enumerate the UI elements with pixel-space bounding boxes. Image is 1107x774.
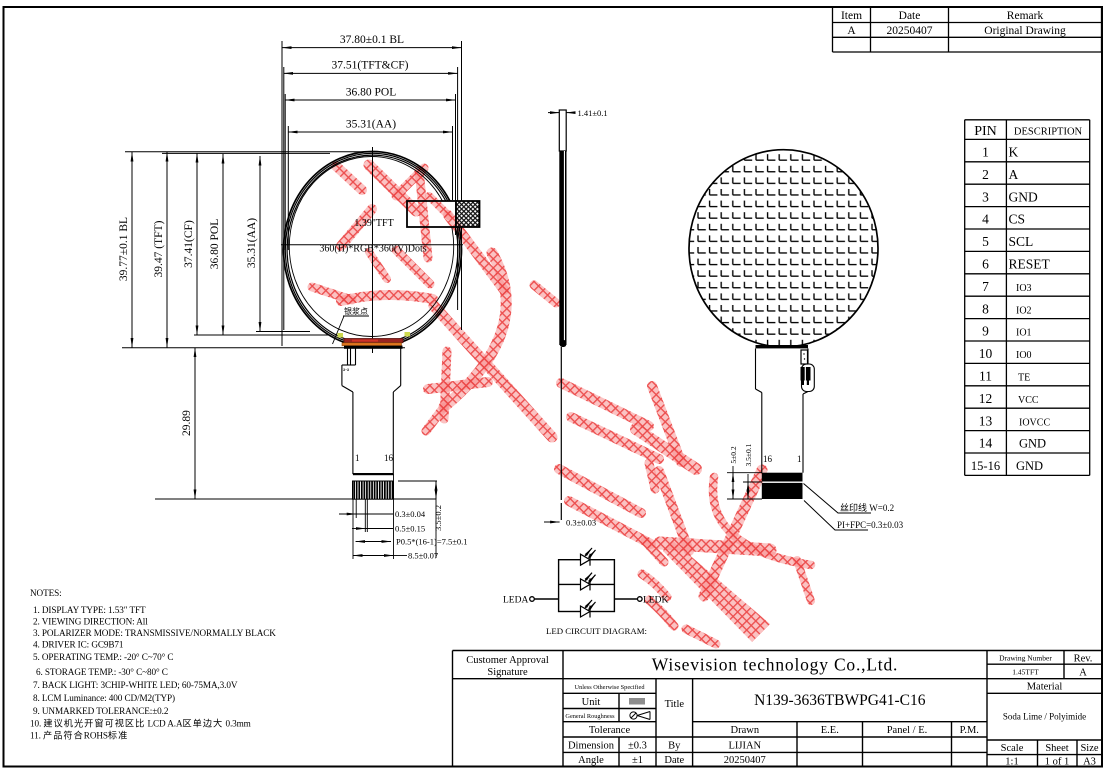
svg-text:Customer Approval: Customer Approval (466, 655, 549, 666)
svg-text:5±0.2: 5±0.2 (729, 446, 738, 463)
svg-text:IO0: IO0 (1016, 350, 1032, 361)
svg-text:PI+FPC=0.3±0.03: PI+FPC=0.3±0.03 (837, 520, 904, 530)
svg-text:IO2: IO2 (1016, 305, 1032, 316)
svg-text:LIJIAN: LIJIAN (728, 741, 761, 752)
svg-text:39.47 (TFT): 39.47 (TFT) (153, 220, 165, 277)
svg-text:9: 9 (982, 324, 989, 339)
svg-text:A: A (847, 25, 856, 37)
svg-text:Tolerance: Tolerance (589, 725, 631, 736)
svg-text:1.41±0.1: 1.41±0.1 (578, 108, 608, 118)
svg-text:1 of 1: 1 of 1 (1045, 757, 1070, 768)
svg-text:20250407: 20250407 (724, 755, 766, 766)
svg-text:TE: TE (1018, 373, 1030, 384)
svg-text:8.5±0.07: 8.5±0.07 (408, 551, 438, 561)
svg-text:35.31(AA): 35.31(AA) (246, 218, 258, 268)
svg-text:37.80±0.1 BL: 37.80±0.1 BL (340, 34, 404, 46)
svg-text:9. UNMARKED TOLERANCE:±0.2: 9. UNMARKED TOLERANCE:±0.2 (33, 706, 169, 716)
svg-text:10. 建议机光开窗可视区比 LCD A.A区单边大 0.3: 10. 建议机光开窗可视区比 LCD A.A区单边大 0.3mm (30, 718, 251, 729)
svg-text:14: 14 (979, 436, 993, 451)
svg-text:E.E.: E.E. (821, 725, 839, 736)
svg-text:Panel / E.: Panel / E. (887, 725, 928, 736)
svg-text:Unit: Unit (582, 697, 601, 708)
svg-text:1: 1 (355, 453, 360, 463)
svg-text:11: 11 (979, 369, 992, 384)
svg-text:0.3±0.04: 0.3±0.04 (395, 509, 426, 519)
svg-text:0.5±0.15: 0.5±0.15 (395, 524, 425, 534)
svg-text:丝印线 W=0.2: 丝印线 W=0.2 (840, 502, 894, 513)
svg-text:37.41(CF): 37.41(CF) (183, 220, 195, 268)
svg-text:37.51(TFT&CF): 37.51(TFT&CF) (332, 60, 409, 72)
svg-text:10: 10 (979, 346, 993, 361)
svg-text:Item: Item (841, 10, 862, 22)
svg-text:1: 1 (797, 454, 802, 464)
svg-text:Signature: Signature (487, 667, 528, 678)
svg-text:a-a: a-a (343, 368, 350, 373)
svg-text:DESCRIPTION: DESCRIPTION (1014, 127, 1083, 138)
svg-text:IO3: IO3 (1016, 283, 1032, 294)
svg-text:1:1: 1:1 (1005, 757, 1018, 768)
svg-text:29.89: 29.89 (181, 410, 193, 436)
svg-text:SCL: SCL (1009, 234, 1034, 249)
svg-text:7. BACK LIGHT: 3CHIP-WHITE LED: 7. BACK LIGHT: 3CHIP-WHITE LED; 60-75MA,… (33, 680, 238, 690)
svg-text:39.77±0.1 BL: 39.77±0.1 BL (118, 217, 130, 281)
svg-text:A: A (1079, 668, 1087, 679)
svg-text:Drawn: Drawn (731, 725, 760, 736)
svg-text:CS: CS (1009, 212, 1026, 227)
svg-text:Date: Date (899, 10, 921, 22)
svg-text:15-16: 15-16 (971, 459, 1000, 473)
svg-text:36.80 POL: 36.80 POL (346, 87, 396, 99)
svg-text:P0.5*(16-1)=7.5±0.1: P0.5*(16-1)=7.5±0.1 (396, 537, 468, 547)
svg-text:Title: Title (665, 699, 685, 710)
svg-text:3. POLARIZER MODE: TRANSMISSI: 3. POLARIZER MODE: TRANSMISSIVE/NORMALLY… (33, 628, 276, 638)
svg-text:银浆点: 银浆点 (344, 306, 368, 316)
svg-text:8. LCM Luminance: 400 CD/M2(TY: 8. LCM Luminance: 400 CD/M2(TYP) (33, 693, 175, 703)
svg-text:Material: Material (1027, 682, 1063, 693)
svg-text:PIN: PIN (974, 124, 997, 139)
svg-text:3.5±0.1: 3.5±0.1 (744, 443, 753, 466)
svg-text:1.45TFT: 1.45TFT (1012, 668, 1039, 677)
svg-text:Soda Lime / Polyimide: Soda Lime / Polyimide (1003, 712, 1086, 722)
svg-text:GND: GND (1009, 189, 1038, 204)
svg-text:12: 12 (979, 391, 993, 406)
svg-text:GND: GND (1019, 437, 1046, 451)
svg-text:N139-3636TBWPG41-C16: N139-3636TBWPG41-C16 (754, 692, 926, 709)
svg-text:IO1: IO1 (1016, 328, 1032, 339)
svg-text:20250407: 20250407 (887, 25, 933, 37)
svg-text:16: 16 (384, 453, 394, 463)
svg-text:6: 6 (982, 257, 989, 272)
svg-text:5: 5 (982, 234, 989, 249)
svg-text:Angle: Angle (578, 755, 604, 766)
svg-text:3.5±0.2: 3.5±0.2 (433, 505, 443, 531)
svg-text:4. DRIVER IC: GC9B71: 4. DRIVER IC: GC9B71 (33, 640, 124, 650)
svg-text:Dimension: Dimension (568, 741, 615, 752)
svg-text:Original Drawing: Original Drawing (984, 25, 1066, 37)
svg-text:11. 产品符合ROHS标准: 11. 产品符合ROHS标准 (30, 730, 128, 741)
svg-text:A3: A3 (1083, 757, 1096, 768)
svg-text:GND: GND (1016, 459, 1043, 473)
svg-text:Rev.: Rev. (1074, 654, 1093, 665)
svg-text:2: 2 (982, 167, 989, 182)
svg-text:Scale: Scale (1001, 743, 1024, 754)
svg-text:6. STORAGE TEMP.: -30° C~80°: 6. STORAGE TEMP.: -30° C~80° C (36, 667, 168, 677)
svg-text:Drawing Number: Drawing Number (999, 654, 1052, 663)
svg-text:VCC: VCC (1018, 395, 1039, 406)
svg-text:By: By (668, 741, 681, 752)
svg-text:16: 16 (763, 454, 773, 464)
svg-text:LED CIRCUIT DIAGRAM:: LED CIRCUIT DIAGRAM: (546, 626, 647, 636)
svg-text:RESET: RESET (1009, 257, 1051, 272)
svg-text:4: 4 (982, 212, 989, 227)
svg-text:Wisevision technology Co.,Ltd.: Wisevision technology Co.,Ltd. (652, 655, 898, 675)
svg-text:36.80 POL: 36.80 POL (209, 219, 221, 269)
svg-text:Sheet: Sheet (1045, 743, 1068, 754)
svg-text:NOTES:: NOTES: (30, 588, 62, 598)
svg-text:0.3±0.03: 0.3±0.03 (566, 518, 596, 528)
svg-text:3: 3 (982, 189, 989, 204)
svg-text:±0.3: ±0.3 (628, 741, 647, 752)
svg-text:1. DISPLAY TYPE: 1.53″ TFT: 1. DISPLAY TYPE: 1.53″ TFT (33, 605, 146, 615)
svg-text:Unless Otherwise Specified: Unless Otherwise Specified (575, 684, 646, 691)
svg-text:Remark: Remark (1007, 10, 1044, 22)
svg-text:Size: Size (1080, 743, 1098, 754)
svg-text:35.31(AA): 35.31(AA) (346, 119, 396, 131)
svg-text:P.M.: P.M. (960, 725, 979, 736)
svg-text:K: K (1009, 145, 1019, 160)
svg-text:IOVCC: IOVCC (1019, 417, 1050, 428)
svg-text:2. VIEWING DIRECTION: All: 2. VIEWING DIRECTION: All (33, 617, 148, 627)
svg-text:13: 13 (979, 413, 993, 428)
svg-text:8: 8 (982, 301, 989, 316)
svg-text:±1: ±1 (632, 755, 643, 766)
svg-text:Date: Date (664, 755, 684, 766)
svg-text:5. OPERATING TEMP.: -20° C~7: 5. OPERATING TEMP.: -20° C~70° C (33, 652, 173, 662)
svg-text:General Roughness: General Roughness (565, 713, 615, 720)
svg-text:1: 1 (982, 145, 989, 160)
svg-text:7: 7 (982, 279, 989, 294)
svg-text:A: A (1009, 167, 1019, 182)
svg-text:LEDA: LEDA (503, 596, 528, 606)
